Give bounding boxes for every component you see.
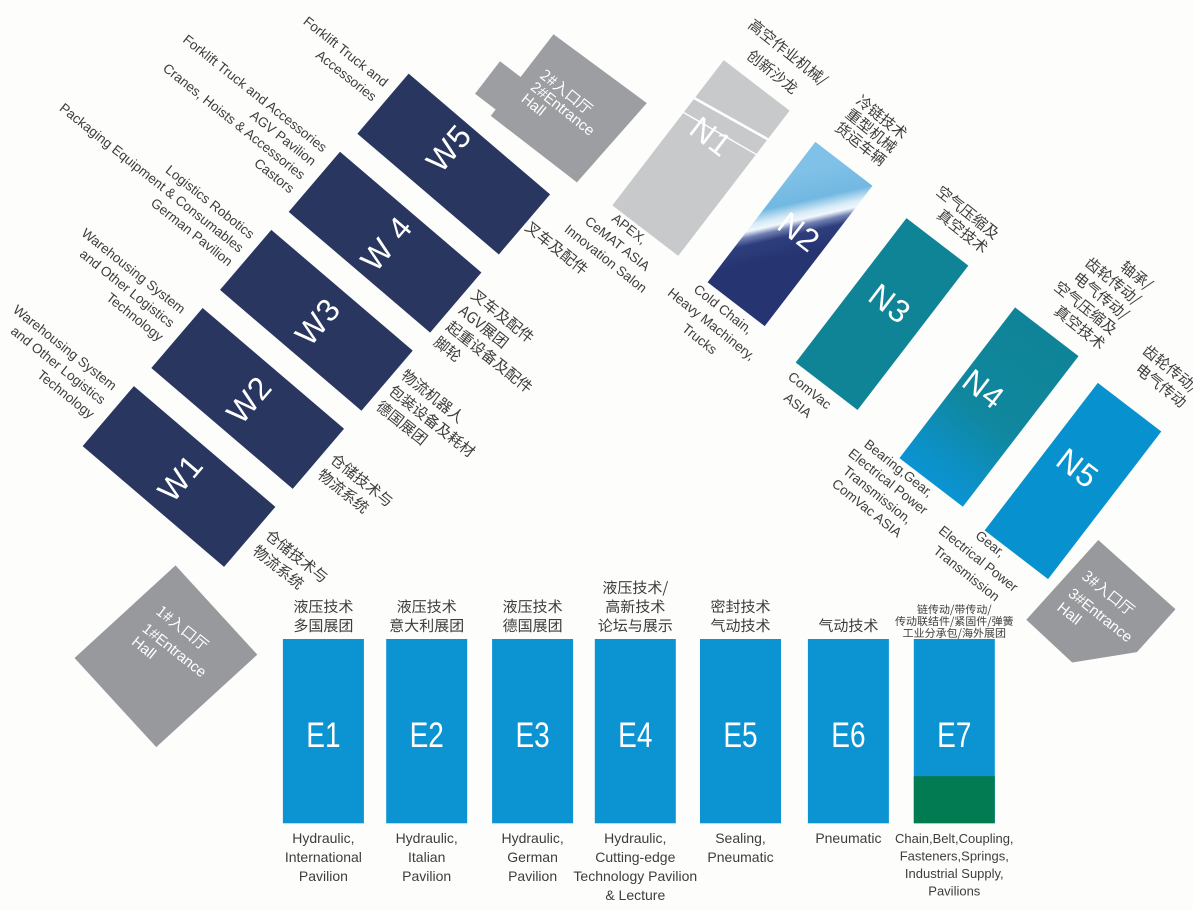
svg-text:Pavilions: Pavilions xyxy=(928,884,981,899)
svg-text:Italian: Italian xyxy=(408,849,445,865)
svg-text:Pavilion: Pavilion xyxy=(299,868,348,884)
svg-text:Pavilion: Pavilion xyxy=(402,868,451,884)
svg-text:E5: E5 xyxy=(723,715,757,755)
svg-text:Hydraulic,: Hydraulic, xyxy=(604,830,666,846)
svg-text:Hydraulic,: Hydraulic, xyxy=(396,830,458,846)
svg-text:Pavilion: Pavilion xyxy=(508,868,557,884)
svg-text:Fasteners,Springs,: Fasteners,Springs, xyxy=(900,849,1009,864)
svg-text:E7: E7 xyxy=(937,715,971,755)
svg-text:Chain,Belt,Coupling,: Chain,Belt,Coupling, xyxy=(895,831,1014,846)
svg-text:E3: E3 xyxy=(515,715,549,755)
svg-text:E6: E6 xyxy=(831,715,865,755)
svg-text:E2: E2 xyxy=(410,715,444,755)
svg-text:E4: E4 xyxy=(618,715,652,755)
svg-text:German: German xyxy=(507,849,558,865)
svg-text:Cutting-edge: Cutting-edge xyxy=(595,849,675,865)
svg-text:Industrial Supply,: Industrial Supply, xyxy=(905,866,1004,881)
svg-text:Technology Pavilion: Technology Pavilion xyxy=(573,868,697,884)
svg-text:E1: E1 xyxy=(306,715,340,755)
svg-text:Pneumatic: Pneumatic xyxy=(707,849,773,865)
svg-text:Hydraulic,: Hydraulic, xyxy=(501,830,563,846)
svg-text:Hydraulic,: Hydraulic, xyxy=(292,830,354,846)
svg-text:Pneumatic: Pneumatic xyxy=(815,830,881,846)
svg-text:International: International xyxy=(285,849,362,865)
svg-text:Sealing,: Sealing, xyxy=(715,830,766,846)
svg-text:& Lecture: & Lecture xyxy=(605,887,665,903)
